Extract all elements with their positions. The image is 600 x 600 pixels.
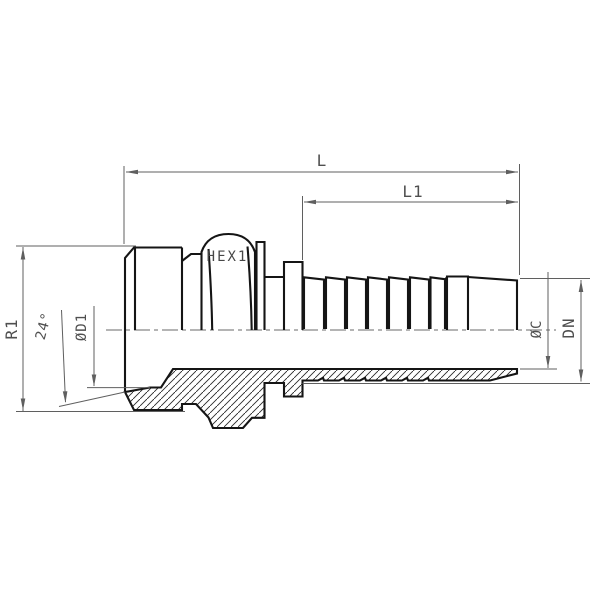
label-nominal-diameter: DN <box>559 317 578 338</box>
label-stem-bore-diameter: ØC <box>529 320 545 339</box>
stem-end-cap <box>468 277 517 330</box>
barb-tooth <box>326 277 345 329</box>
arrow-D1 <box>92 375 97 387</box>
barb-tooth <box>389 277 408 329</box>
arrow-L-right <box>506 170 518 175</box>
section-profile-hatched <box>125 369 517 428</box>
barb-tooth <box>304 277 324 329</box>
cone-surface-extension <box>59 392 125 407</box>
hose-stop-collar <box>284 262 303 330</box>
arrow-L-left <box>126 170 138 175</box>
barb-tooth <box>347 277 366 329</box>
ring-flange <box>257 242 265 330</box>
arrow-DN-bottom <box>579 370 584 382</box>
fitting-drawing-svg: L L1 HEX1 R1 24° ØD1 ØC DN <box>0 0 600 600</box>
barb-tooth <box>368 277 387 329</box>
label-thread-size: R1 <box>2 318 21 339</box>
cone-seat-top <box>182 254 202 261</box>
arrow-DN-top <box>579 280 584 292</box>
label-hex-size: HEX1 <box>207 249 249 265</box>
arrow-C <box>546 356 551 368</box>
technical-drawing-canvas: L L1 HEX1 R1 24° ØD1 ØC DN <box>0 0 600 600</box>
angle-dim-leg <box>62 310 66 402</box>
arrow-angle <box>63 391 68 403</box>
arrow-L1-right <box>506 200 518 205</box>
label-overall-length: L <box>317 151 328 170</box>
label-cone-angle: 24° <box>33 310 56 341</box>
arrow-R1-bottom <box>21 399 26 411</box>
arrow-R1-top <box>21 248 26 260</box>
label-tail-length: L1 <box>402 182 423 201</box>
barb-tooth <box>410 277 429 329</box>
label-thread-bore-diameter: ØD1 <box>74 313 90 341</box>
stem-band <box>447 277 468 331</box>
barb-tooth <box>431 277 446 329</box>
arrow-L1-left <box>304 200 316 205</box>
